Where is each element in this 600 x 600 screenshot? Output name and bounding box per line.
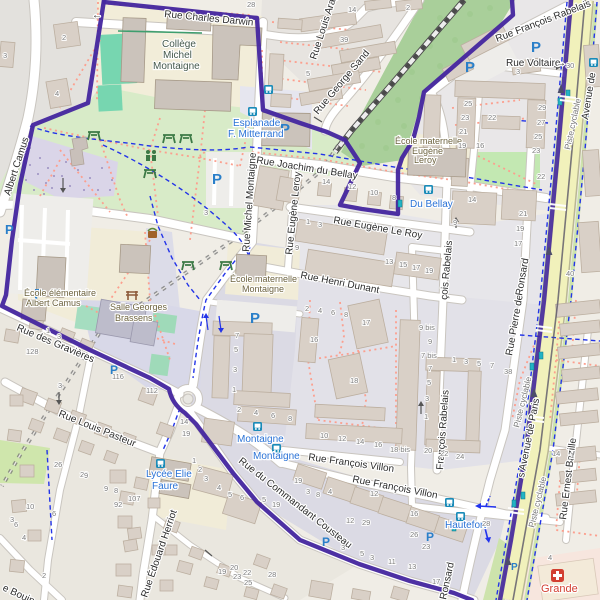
svg-text:2: 2 bbox=[237, 405, 241, 414]
svg-text:Du Bellay: Du Bellay bbox=[410, 199, 453, 210]
svg-text:6: 6 bbox=[52, 509, 56, 518]
svg-text:10: 10 bbox=[26, 502, 34, 511]
svg-text:Hautefort: Hautefort bbox=[445, 520, 486, 531]
svg-text:Montaigne: Montaigne bbox=[237, 434, 284, 445]
svg-text:École maternelle: École maternelle bbox=[230, 274, 297, 284]
svg-text:École maternelle: École maternelle bbox=[395, 136, 462, 146]
svg-text:9: 9 bbox=[84, 471, 88, 480]
svg-text:Rue Voltaire: Rue Voltaire bbox=[506, 58, 561, 69]
svg-text:Michel: Michel bbox=[163, 50, 192, 61]
svg-text:5: 5 bbox=[306, 69, 310, 78]
svg-text:1: 1 bbox=[424, 412, 428, 421]
svg-text:10: 10 bbox=[320, 431, 328, 440]
svg-text:Lycée Elie: Lycée Elie bbox=[146, 469, 192, 480]
svg-text:20: 20 bbox=[424, 446, 432, 455]
svg-text:Brassens: Brassens bbox=[115, 313, 153, 323]
svg-text:5: 5 bbox=[477, 359, 481, 368]
svg-text:3: 3 bbox=[57, 332, 61, 341]
svg-text:20: 20 bbox=[230, 563, 238, 572]
svg-text:4: 4 bbox=[548, 553, 552, 562]
svg-text:1: 1 bbox=[192, 456, 196, 465]
svg-text:23: 23 bbox=[461, 113, 469, 122]
svg-text:22: 22 bbox=[488, 113, 496, 122]
svg-text:Montaigne: Montaigne bbox=[242, 284, 284, 294]
svg-text:16: 16 bbox=[410, 509, 418, 518]
svg-text:12: 12 bbox=[346, 516, 354, 525]
svg-text:19: 19 bbox=[218, 567, 226, 576]
svg-text:116: 116 bbox=[112, 372, 124, 381]
svg-text:P: P bbox=[5, 222, 14, 237]
svg-text:17: 17 bbox=[432, 577, 440, 586]
svg-text:14: 14 bbox=[356, 437, 364, 446]
svg-text:21: 21 bbox=[519, 209, 527, 218]
svg-text:5: 5 bbox=[360, 549, 364, 558]
svg-text:14: 14 bbox=[348, 5, 356, 14]
svg-text:8: 8 bbox=[114, 486, 118, 495]
svg-text:F. Mitterrand: F. Mitterrand bbox=[228, 129, 284, 140]
svg-text:107: 107 bbox=[128, 494, 141, 503]
svg-text:P: P bbox=[511, 562, 518, 573]
svg-text:19: 19 bbox=[182, 429, 190, 438]
svg-text:3: 3 bbox=[233, 365, 237, 374]
svg-text:23: 23 bbox=[532, 146, 540, 155]
svg-text:28: 28 bbox=[247, 0, 255, 9]
svg-text:7: 7 bbox=[428, 364, 432, 373]
svg-text:6: 6 bbox=[240, 493, 244, 502]
svg-text:3: 3 bbox=[306, 487, 310, 496]
svg-text:14: 14 bbox=[552, 449, 560, 458]
svg-text:27: 27 bbox=[537, 118, 545, 127]
svg-text:29: 29 bbox=[362, 518, 370, 527]
svg-text:22: 22 bbox=[537, 172, 545, 181]
svg-text:12: 12 bbox=[348, 182, 356, 191]
svg-text:39: 39 bbox=[340, 35, 348, 44]
svg-text:16: 16 bbox=[374, 440, 382, 449]
svg-text:9: 9 bbox=[453, 218, 457, 227]
svg-text:4: 4 bbox=[328, 487, 332, 496]
svg-text:Grande: Grande bbox=[541, 583, 578, 595]
svg-text:12: 12 bbox=[338, 434, 346, 443]
svg-text:14: 14 bbox=[180, 417, 188, 426]
svg-text:29: 29 bbox=[538, 103, 546, 112]
svg-text:26: 26 bbox=[54, 460, 62, 469]
svg-text:4: 4 bbox=[254, 408, 258, 417]
svg-text:5: 5 bbox=[427, 378, 431, 387]
svg-text:2: 2 bbox=[198, 465, 202, 474]
svg-text:Salle Georges: Salle Georges bbox=[110, 302, 168, 312]
svg-text:19: 19 bbox=[458, 141, 466, 150]
svg-text:19: 19 bbox=[425, 266, 433, 275]
svg-text:2: 2 bbox=[42, 571, 46, 580]
svg-text:5: 5 bbox=[234, 345, 238, 354]
svg-text:24: 24 bbox=[456, 452, 464, 461]
svg-text:Albert Camus: Albert Camus bbox=[26, 298, 81, 308]
svg-text:5: 5 bbox=[262, 495, 266, 504]
svg-text:19: 19 bbox=[516, 224, 524, 233]
svg-text:17: 17 bbox=[412, 263, 420, 272]
svg-text:3: 3 bbox=[341, 543, 345, 552]
svg-text:École élémentaire: École élémentaire bbox=[24, 288, 96, 298]
svg-text:23: 23 bbox=[422, 542, 430, 551]
svg-text:38: 38 bbox=[504, 367, 512, 376]
svg-text:5: 5 bbox=[228, 490, 232, 499]
svg-text:11: 11 bbox=[388, 557, 396, 566]
svg-text:9 bis: 9 bis bbox=[419, 323, 435, 332]
svg-text:18: 18 bbox=[350, 376, 358, 385]
svg-text:3: 3 bbox=[3, 51, 7, 60]
svg-text:8: 8 bbox=[316, 490, 320, 499]
svg-text:18 bis: 18 bis bbox=[390, 445, 410, 454]
svg-text:P: P bbox=[531, 39, 541, 56]
svg-text:6: 6 bbox=[331, 308, 335, 317]
svg-text:4: 4 bbox=[318, 306, 322, 315]
svg-text:Montaigne: Montaigne bbox=[153, 61, 200, 72]
svg-text:16: 16 bbox=[476, 141, 484, 150]
svg-text:7: 7 bbox=[235, 331, 239, 340]
svg-text:6: 6 bbox=[14, 520, 18, 529]
svg-text:92: 92 bbox=[114, 500, 122, 509]
svg-text:7: 7 bbox=[490, 361, 494, 370]
svg-text:8: 8 bbox=[288, 414, 292, 423]
svg-text:4: 4 bbox=[217, 483, 221, 492]
svg-text:17: 17 bbox=[362, 318, 370, 327]
svg-text:26: 26 bbox=[410, 530, 418, 539]
svg-text:13: 13 bbox=[408, 562, 416, 571]
svg-text:9: 9 bbox=[295, 243, 299, 252]
svg-text:13: 13 bbox=[385, 257, 393, 266]
svg-text:3: 3 bbox=[464, 357, 468, 366]
svg-text:4: 4 bbox=[55, 89, 59, 98]
svg-text:3: 3 bbox=[516, 67, 520, 76]
svg-text:25: 25 bbox=[244, 578, 252, 587]
svg-text:2: 2 bbox=[406, 3, 410, 12]
svg-text:1: 1 bbox=[232, 385, 236, 394]
svg-text:4: 4 bbox=[22, 533, 26, 542]
svg-text:1: 1 bbox=[570, 451, 574, 460]
svg-text:23: 23 bbox=[233, 572, 241, 581]
svg-text:7 bis: 7 bis bbox=[421, 351, 437, 360]
svg-text:30: 30 bbox=[566, 61, 574, 70]
svg-text:19: 19 bbox=[272, 500, 280, 509]
svg-text:Faure: Faure bbox=[152, 481, 179, 492]
svg-text:14: 14 bbox=[322, 177, 330, 186]
svg-text:21: 21 bbox=[459, 127, 467, 136]
svg-text:12: 12 bbox=[370, 489, 378, 498]
svg-text:3: 3 bbox=[58, 381, 62, 390]
svg-text:Leroy: Leroy bbox=[414, 155, 437, 165]
svg-text:9: 9 bbox=[428, 337, 432, 346]
svg-text:Esplanade: Esplanade bbox=[233, 118, 281, 129]
svg-text:8: 8 bbox=[392, 193, 396, 202]
svg-text:15: 15 bbox=[399, 260, 407, 269]
svg-text:3: 3 bbox=[204, 208, 208, 217]
svg-text:112: 112 bbox=[146, 386, 158, 395]
svg-text:22: 22 bbox=[243, 568, 251, 577]
svg-text:14: 14 bbox=[468, 195, 476, 204]
svg-text:2: 2 bbox=[305, 304, 309, 313]
svg-text:1: 1 bbox=[452, 355, 456, 364]
svg-text:28: 28 bbox=[268, 570, 276, 579]
svg-text:40: 40 bbox=[566, 269, 574, 278]
svg-text:→: → bbox=[556, 58, 566, 69]
svg-text:1: 1 bbox=[46, 326, 50, 335]
svg-text:19: 19 bbox=[294, 476, 302, 485]
svg-text:8: 8 bbox=[344, 310, 348, 319]
svg-text:3: 3 bbox=[425, 394, 429, 403]
svg-text:25: 25 bbox=[464, 99, 472, 108]
svg-text:17: 17 bbox=[514, 239, 522, 248]
svg-text:22: 22 bbox=[440, 449, 448, 458]
svg-text:1: 1 bbox=[306, 217, 310, 226]
svg-text:P: P bbox=[322, 535, 330, 549]
svg-text:P: P bbox=[212, 171, 222, 188]
svg-text:16: 16 bbox=[310, 335, 318, 344]
svg-text:128: 128 bbox=[26, 347, 39, 356]
svg-text:P: P bbox=[250, 310, 260, 327]
svg-text:3: 3 bbox=[370, 553, 374, 562]
svg-text:10: 10 bbox=[370, 188, 378, 197]
svg-text:Montaigne: Montaigne bbox=[253, 451, 300, 462]
svg-text:3: 3 bbox=[318, 220, 322, 229]
svg-text:←: ← bbox=[92, 10, 102, 21]
svg-text:28: 28 bbox=[482, 519, 490, 528]
svg-text:9: 9 bbox=[104, 484, 108, 493]
svg-text:6: 6 bbox=[271, 411, 275, 420]
svg-text:2: 2 bbox=[62, 33, 66, 42]
svg-text:25: 25 bbox=[534, 132, 542, 141]
svg-text:3: 3 bbox=[204, 474, 208, 483]
svg-text:P: P bbox=[465, 59, 475, 76]
svg-text:Collège: Collège bbox=[162, 39, 196, 50]
